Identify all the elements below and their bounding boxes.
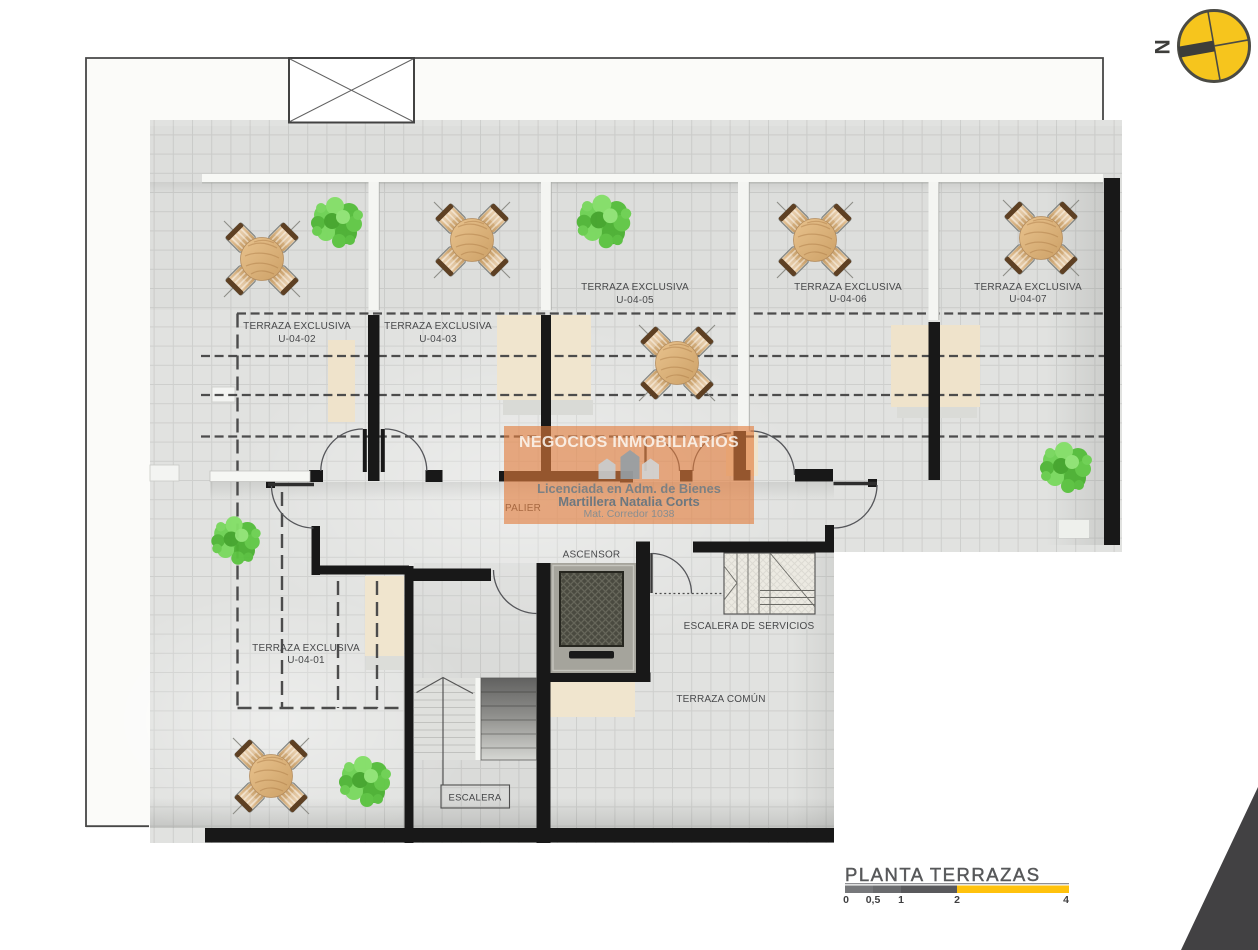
- svg-text:TERRAZA EXCLUSIVA: TERRAZA EXCLUSIVA: [252, 643, 360, 654]
- svg-text:2: 2: [954, 894, 960, 906]
- svg-text:TERRAZA COMÚN: TERRAZA COMÚN: [676, 692, 765, 705]
- svg-text:0,5: 0,5: [866, 894, 881, 906]
- svg-text:U-04-07: U-04-07: [1009, 294, 1047, 305]
- svg-text:1: 1: [898, 894, 904, 906]
- svg-text:U-04-02: U-04-02: [278, 334, 316, 345]
- svg-text:4: 4: [1063, 894, 1069, 906]
- svg-text:TERRAZA EXCLUSIVA: TERRAZA EXCLUSIVA: [384, 321, 492, 332]
- svg-text:NEGOCIOS INMOBILIARIOS: NEGOCIOS INMOBILIARIOS: [519, 434, 739, 451]
- svg-text:TERRAZA EXCLUSIVA: TERRAZA EXCLUSIVA: [974, 282, 1082, 293]
- svg-text:Martillera Natalia Corts: Martillera Natalia Corts: [558, 494, 700, 509]
- svg-text:U-04-01: U-04-01: [287, 655, 325, 666]
- svg-text:TERRAZA EXCLUSIVA: TERRAZA EXCLUSIVA: [243, 321, 351, 332]
- svg-text:U-04-03: U-04-03: [419, 334, 457, 345]
- svg-text:PLANTA TERRAZAS: PLANTA TERRAZAS: [845, 864, 1041, 885]
- svg-text:TERRAZA EXCLUSIVA: TERRAZA EXCLUSIVA: [581, 282, 689, 293]
- svg-text:ESCALERA: ESCALERA: [448, 793, 501, 804]
- svg-text:U-04-06: U-04-06: [829, 294, 867, 305]
- svg-text:N: N: [1150, 39, 1173, 54]
- svg-text:TERRAZA EXCLUSIVA: TERRAZA EXCLUSIVA: [794, 282, 902, 293]
- svg-text:Mat. Corredor 1038: Mat. Corredor 1038: [583, 508, 674, 520]
- svg-text:0: 0: [843, 894, 849, 906]
- svg-text:ASCENSOR: ASCENSOR: [563, 550, 621, 561]
- svg-text:U-04-05: U-04-05: [616, 295, 654, 306]
- svg-text:ESCALERA DE SERVICIOS: ESCALERA DE SERVICIOS: [684, 621, 815, 632]
